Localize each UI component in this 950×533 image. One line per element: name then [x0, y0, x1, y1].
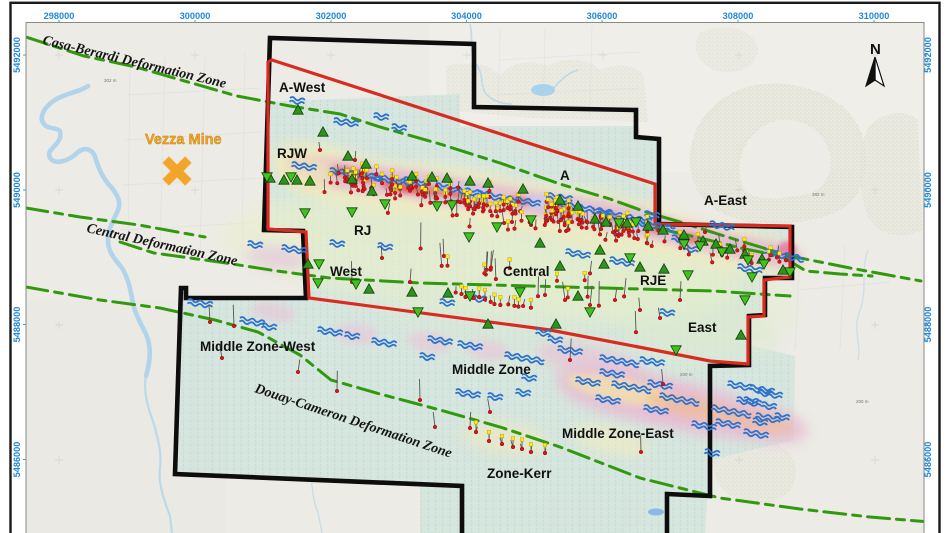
svg-text:308000: 308000: [723, 11, 754, 21]
svg-text:Central: Central: [503, 264, 550, 279]
svg-text:RJ: RJ: [354, 223, 371, 238]
svg-text:RJW: RJW: [277, 146, 307, 161]
svg-text:300000: 300000: [180, 11, 211, 21]
svg-text:West: West: [330, 264, 363, 279]
svg-text:East: East: [688, 320, 717, 335]
svg-text:Vezza Mine: Vezza Mine: [145, 132, 222, 148]
svg-text:200 m: 200 m: [680, 372, 693, 377]
svg-text:304000: 304000: [451, 11, 482, 21]
svg-text:5492000: 5492000: [12, 37, 22, 73]
svg-text:298000: 298000: [44, 11, 75, 21]
svg-text:302000: 302000: [316, 11, 347, 21]
svg-text:310000: 310000: [859, 11, 890, 21]
svg-text:382 m: 382 m: [812, 192, 825, 197]
svg-text:Middle Zone-East: Middle Zone-East: [562, 426, 674, 441]
svg-text:A: A: [560, 168, 570, 183]
svg-text:N: N: [870, 41, 881, 58]
svg-text:5488000: 5488000: [12, 307, 22, 343]
svg-text:A-East: A-East: [704, 193, 747, 208]
svg-text:5490000: 5490000: [12, 172, 22, 208]
svg-text:Middle Zone-West: Middle Zone-West: [200, 339, 316, 354]
svg-text:Zone-Kerr: Zone-Kerr: [487, 466, 552, 481]
svg-text:A-West: A-West: [279, 80, 326, 95]
svg-text:200 m: 200 m: [856, 399, 869, 404]
svg-text:5486000: 5486000: [12, 442, 22, 478]
svg-text:302 m: 302 m: [104, 78, 117, 83]
svg-text:RJE: RJE: [640, 273, 666, 288]
svg-text:Middle Zone: Middle Zone: [452, 362, 531, 377]
svg-text:306000: 306000: [587, 11, 618, 21]
